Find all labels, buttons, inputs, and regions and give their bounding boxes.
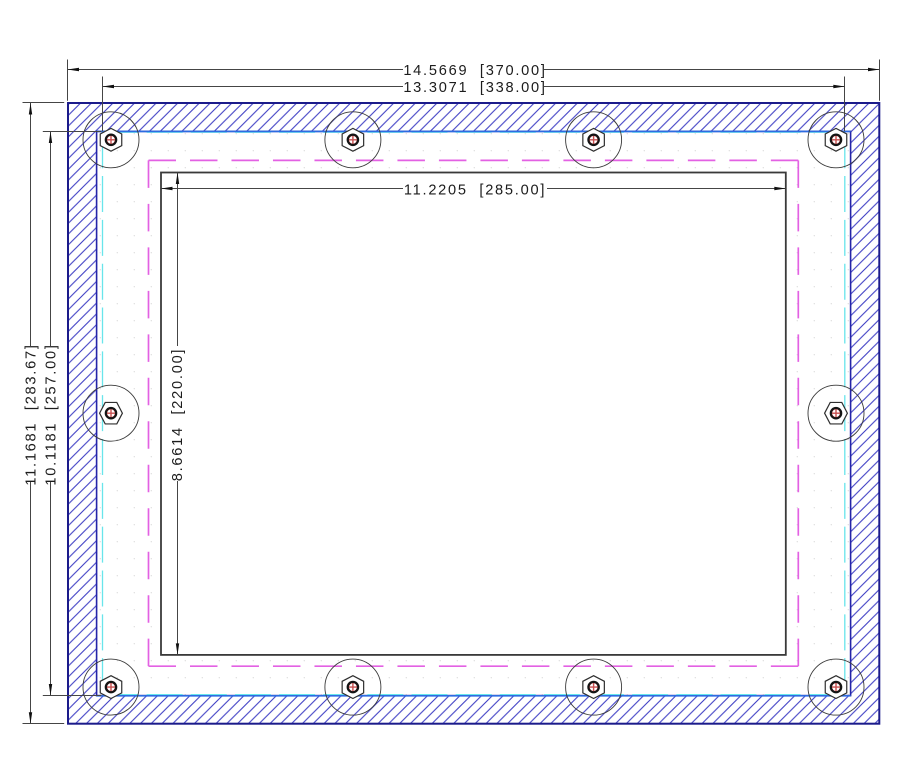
svg-text:10.1181 [257.00]: 10.1181 [257.00] <box>44 343 60 485</box>
svg-text:11.2205 [285.00]: 11.2205 [285.00] <box>404 182 546 198</box>
svg-text:11.1681 [283.67]: 11.1681 [283.67] <box>23 343 39 485</box>
svg-text:14.5669 [370.00]: 14.5669 [370.00] <box>403 63 546 79</box>
svg-text:13.3071 [338.00]: 13.3071 [338.00] <box>403 80 546 96</box>
svg-text:8.6614 [220.00]: 8.6614 [220.00] <box>170 348 186 482</box>
